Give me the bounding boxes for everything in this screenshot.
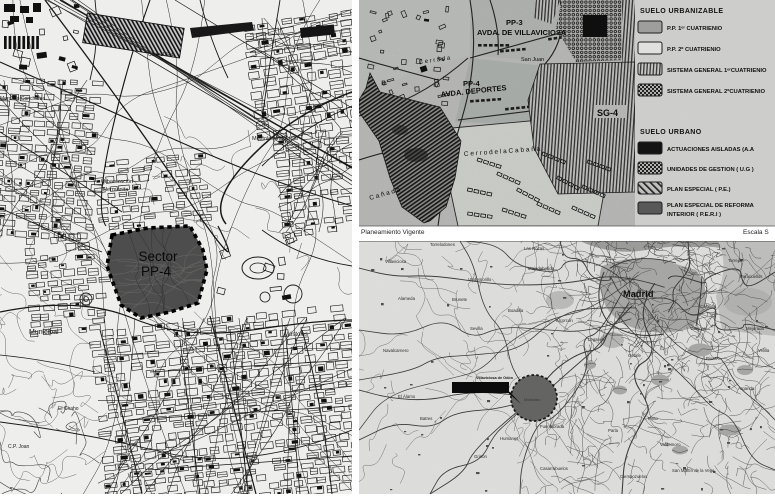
svg-text:Planeamiento Vigente: Planeamiento Vigente — [361, 229, 425, 236]
svg-text:Escala S: Escala S — [743, 229, 769, 236]
